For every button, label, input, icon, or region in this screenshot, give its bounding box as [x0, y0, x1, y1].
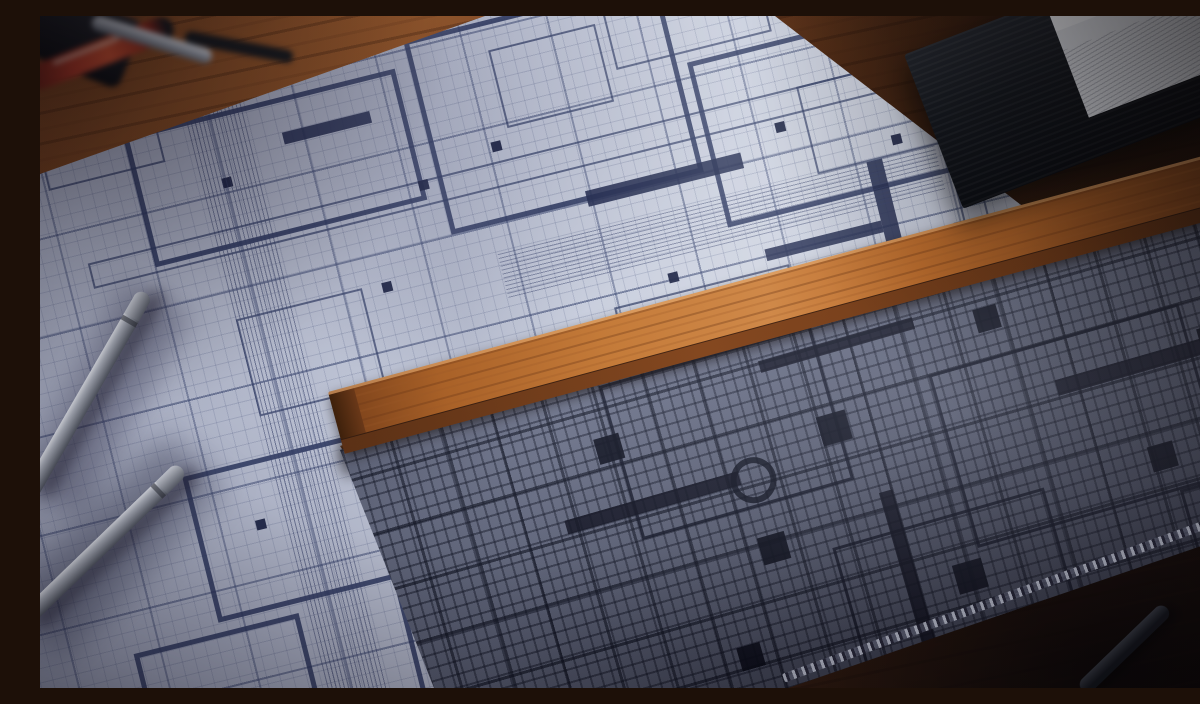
photo-scene: Close-up photograph of architectural blu…: [40, 16, 1200, 688]
out-of-focus-pens: [40, 16, 340, 156]
